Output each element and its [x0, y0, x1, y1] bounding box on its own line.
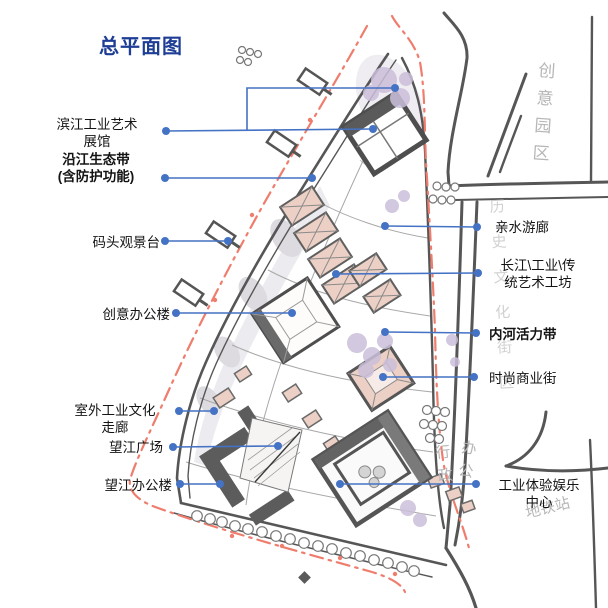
wangjiang-plaza-shape	[240, 418, 302, 492]
label-creative-office: 创意办公楼	[40, 306, 170, 323]
label-wangjiang-office: 望江办公楼	[42, 477, 172, 494]
label-riverside-eco-belt: 沿江生态带 (含防护功能)	[30, 151, 162, 185]
label-waterfront-gallery: 亲水游廊	[495, 219, 585, 236]
pavement-marker	[298, 571, 311, 584]
page-title: 总平面图	[99, 30, 183, 59]
dock-viewing-platform-shape	[206, 222, 244, 254]
handwritten-annotations: 创意园区 历史文化街区 行政 办公 地铁站	[435, 61, 572, 522]
label-binjiang-gallery: 滨江工业艺术 展馆	[33, 116, 161, 150]
label-art-workshops: 长江\工业\传 统艺术工坊	[486, 257, 590, 291]
label-inner-river-belt: 内河活力带	[489, 326, 579, 343]
label-industrial-entertainment: 工业体验娱乐 中心	[487, 477, 591, 511]
label-wangjiang-plaza: 望江广场	[33, 439, 163, 456]
site-plan-map: 创意园区 历史文化街区 行政 办公 地铁站	[0, 0, 608, 608]
label-outdoor-industrial-corridor: 室外工业文化 走廊	[55, 402, 175, 436]
master-plan-page: 创意园区 历史文化街区 行政 办公 地铁站 总平面图 滨江工	[0, 0, 608, 608]
label-fashion-street: 时尚商业街	[489, 370, 579, 387]
admin-note-col2: 办公	[457, 438, 478, 481]
label-dock-viewing-platform: 码头观景台	[30, 234, 160, 251]
creative-park-note: 创意园区	[532, 61, 556, 165]
